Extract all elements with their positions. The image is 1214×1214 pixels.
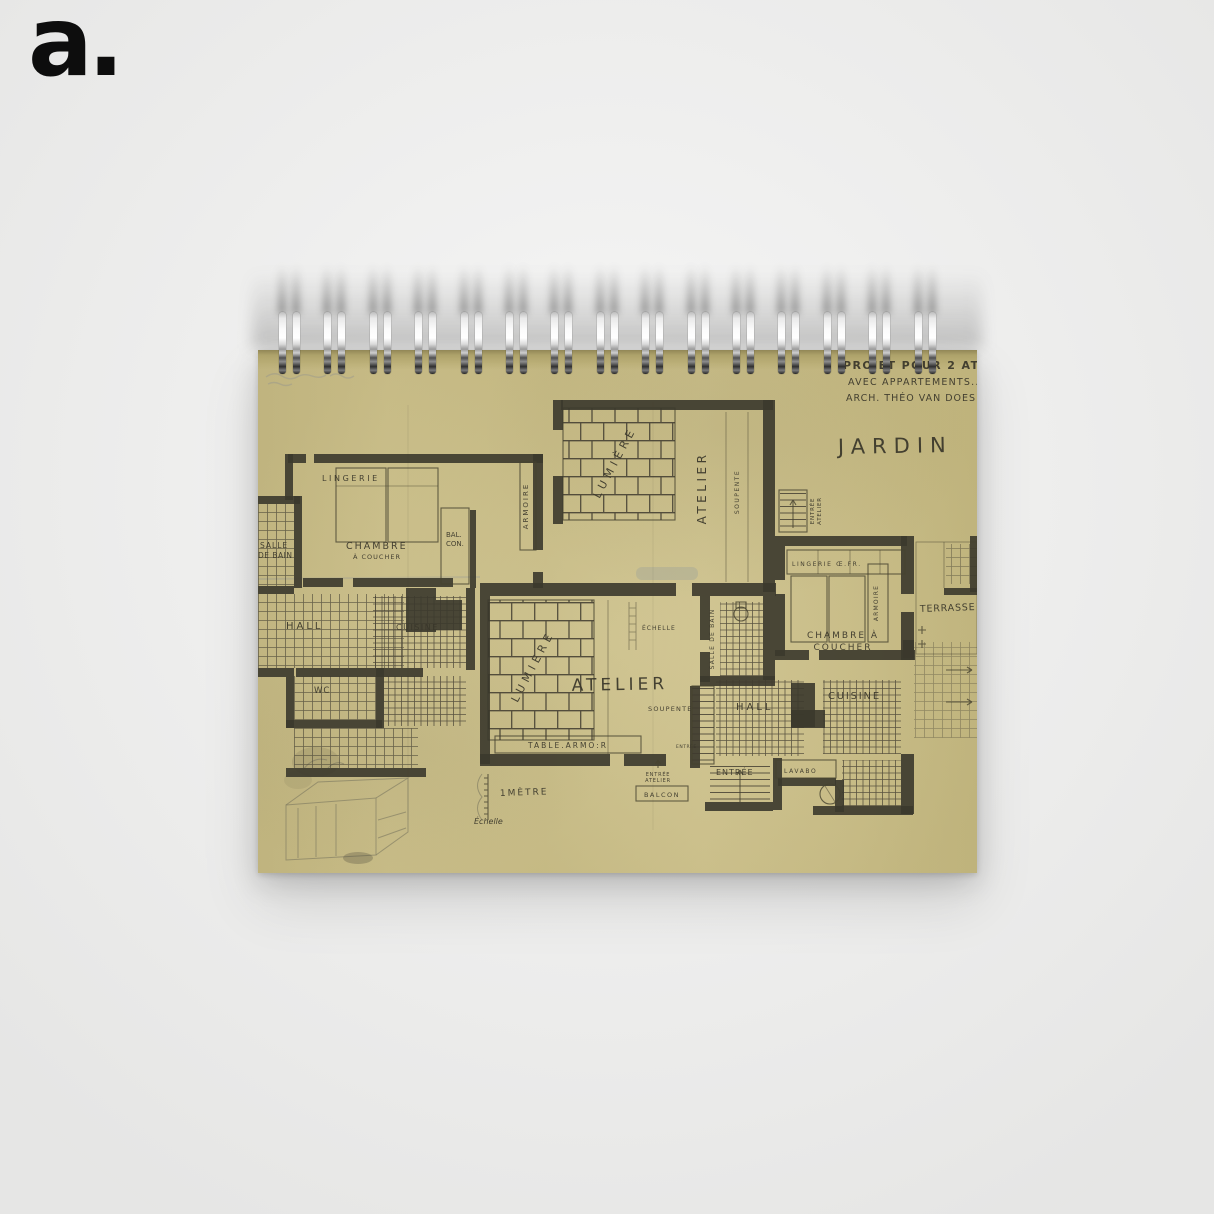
- label-table-armoire: TABLE.ARMO:R: [527, 741, 608, 750]
- brand-logo[interactable]: a.: [28, 0, 119, 98]
- binding-ring: [549, 312, 576, 376]
- label-lingerie-left: LINGERIE: [322, 474, 380, 483]
- label-hall-left: HALL: [286, 621, 324, 632]
- label-wc: WC: [314, 686, 330, 696]
- label-jardin: JARDIN: [836, 433, 953, 459]
- label-salle-de-bain-mid: SALLE DE BAIN: [709, 609, 716, 670]
- label-entree-atelier-top: ATELIER: [817, 497, 823, 525]
- title-block: PROJET POUR 2 ATELI AVEC APPARTEMENTS.. …: [843, 359, 977, 404]
- label-chambre-left-2: À COUCHER: [353, 552, 401, 561]
- label-chambre-left-1: CHAMBRE: [346, 541, 408, 552]
- binding-ring: [822, 312, 849, 376]
- label-cuisine-right: CUISINE: [828, 691, 881, 702]
- floor-plan-drawing: PROJET POUR 2 ATELI AVEC APPARTEMENTS.. …: [258, 350, 977, 873]
- label-salle-left-2: DE BAIN: [258, 551, 293, 560]
- label-terrasse: TERRASSE: [919, 602, 976, 615]
- label-lavabo: LAVABO: [784, 768, 817, 775]
- binding-ring: [322, 312, 349, 376]
- label-balcon-left-1: BAL.: [446, 531, 462, 539]
- binding-ring: [504, 312, 531, 376]
- binding-ring: [913, 312, 940, 376]
- binding-ring: [595, 312, 622, 376]
- binding-ring: [640, 312, 667, 376]
- label-armoire-right: ARMOIRE: [873, 585, 880, 621]
- label-entree-bottom-1: ENTRÉE: [646, 770, 671, 778]
- notebook-product-photo[interactable]: PROJET POUR 2 ATELI AVEC APPARTEMENTS.. …: [258, 350, 977, 873]
- mockup-background: a.: [0, 0, 1214, 1214]
- notebook-page: PROJET POUR 2 ATELI AVEC APPARTEMENTS.. …: [258, 350, 977, 873]
- label-1metre: 1MÈTRE: [500, 785, 549, 799]
- binding-ring: [867, 312, 894, 376]
- label-balcon-bottom: BALCON: [644, 791, 680, 799]
- binding-ring: [413, 312, 440, 376]
- binding-ring: [686, 312, 713, 376]
- binding-ring: [459, 312, 486, 376]
- label-soupente-top: SOUPENTE: [734, 470, 741, 514]
- title-line-2: AVEC APPARTEMENTS..: [848, 377, 977, 388]
- label-lingerie-right: LINGERIE Œ.FR.: [792, 561, 862, 568]
- label-entree-top: ENTRÉE: [808, 498, 816, 525]
- label-echelle-ladder: ÉCHELLE: [642, 624, 676, 632]
- binding-ring: [277, 312, 304, 376]
- label-chambre-right-1: CHAMBRE À: [807, 629, 879, 641]
- label-cuisine-left: CUISINE: [396, 623, 439, 632]
- label-atelier-main: ATELIER: [572, 674, 669, 696]
- label-soupente-main: SOUPENTE: [648, 705, 693, 713]
- label-balcon-left-2: CON.: [446, 540, 464, 548]
- label-entree-bottom-2: ATELIER: [645, 778, 671, 784]
- label-echelle-note: Échelle: [474, 815, 503, 826]
- title-line-3: ARCH. THÉO VAN DOES:B: [846, 392, 977, 404]
- label-hall-right: HALL: [736, 702, 774, 713]
- label-entree-right: ENTRÉE: [716, 766, 754, 777]
- label-salle-left-1: SALLE: [260, 541, 288, 550]
- label-chambre-right-2: COUCHER: [814, 643, 873, 653]
- binding-ring: [731, 312, 758, 376]
- title-line-1: PROJET POUR 2 ATELI: [843, 359, 977, 372]
- binding-ring: [776, 312, 803, 376]
- binding-ring: [368, 312, 395, 376]
- label-atelier-top: ATELIER: [695, 452, 709, 525]
- label-armoire-left: ARMOIRE: [522, 483, 530, 530]
